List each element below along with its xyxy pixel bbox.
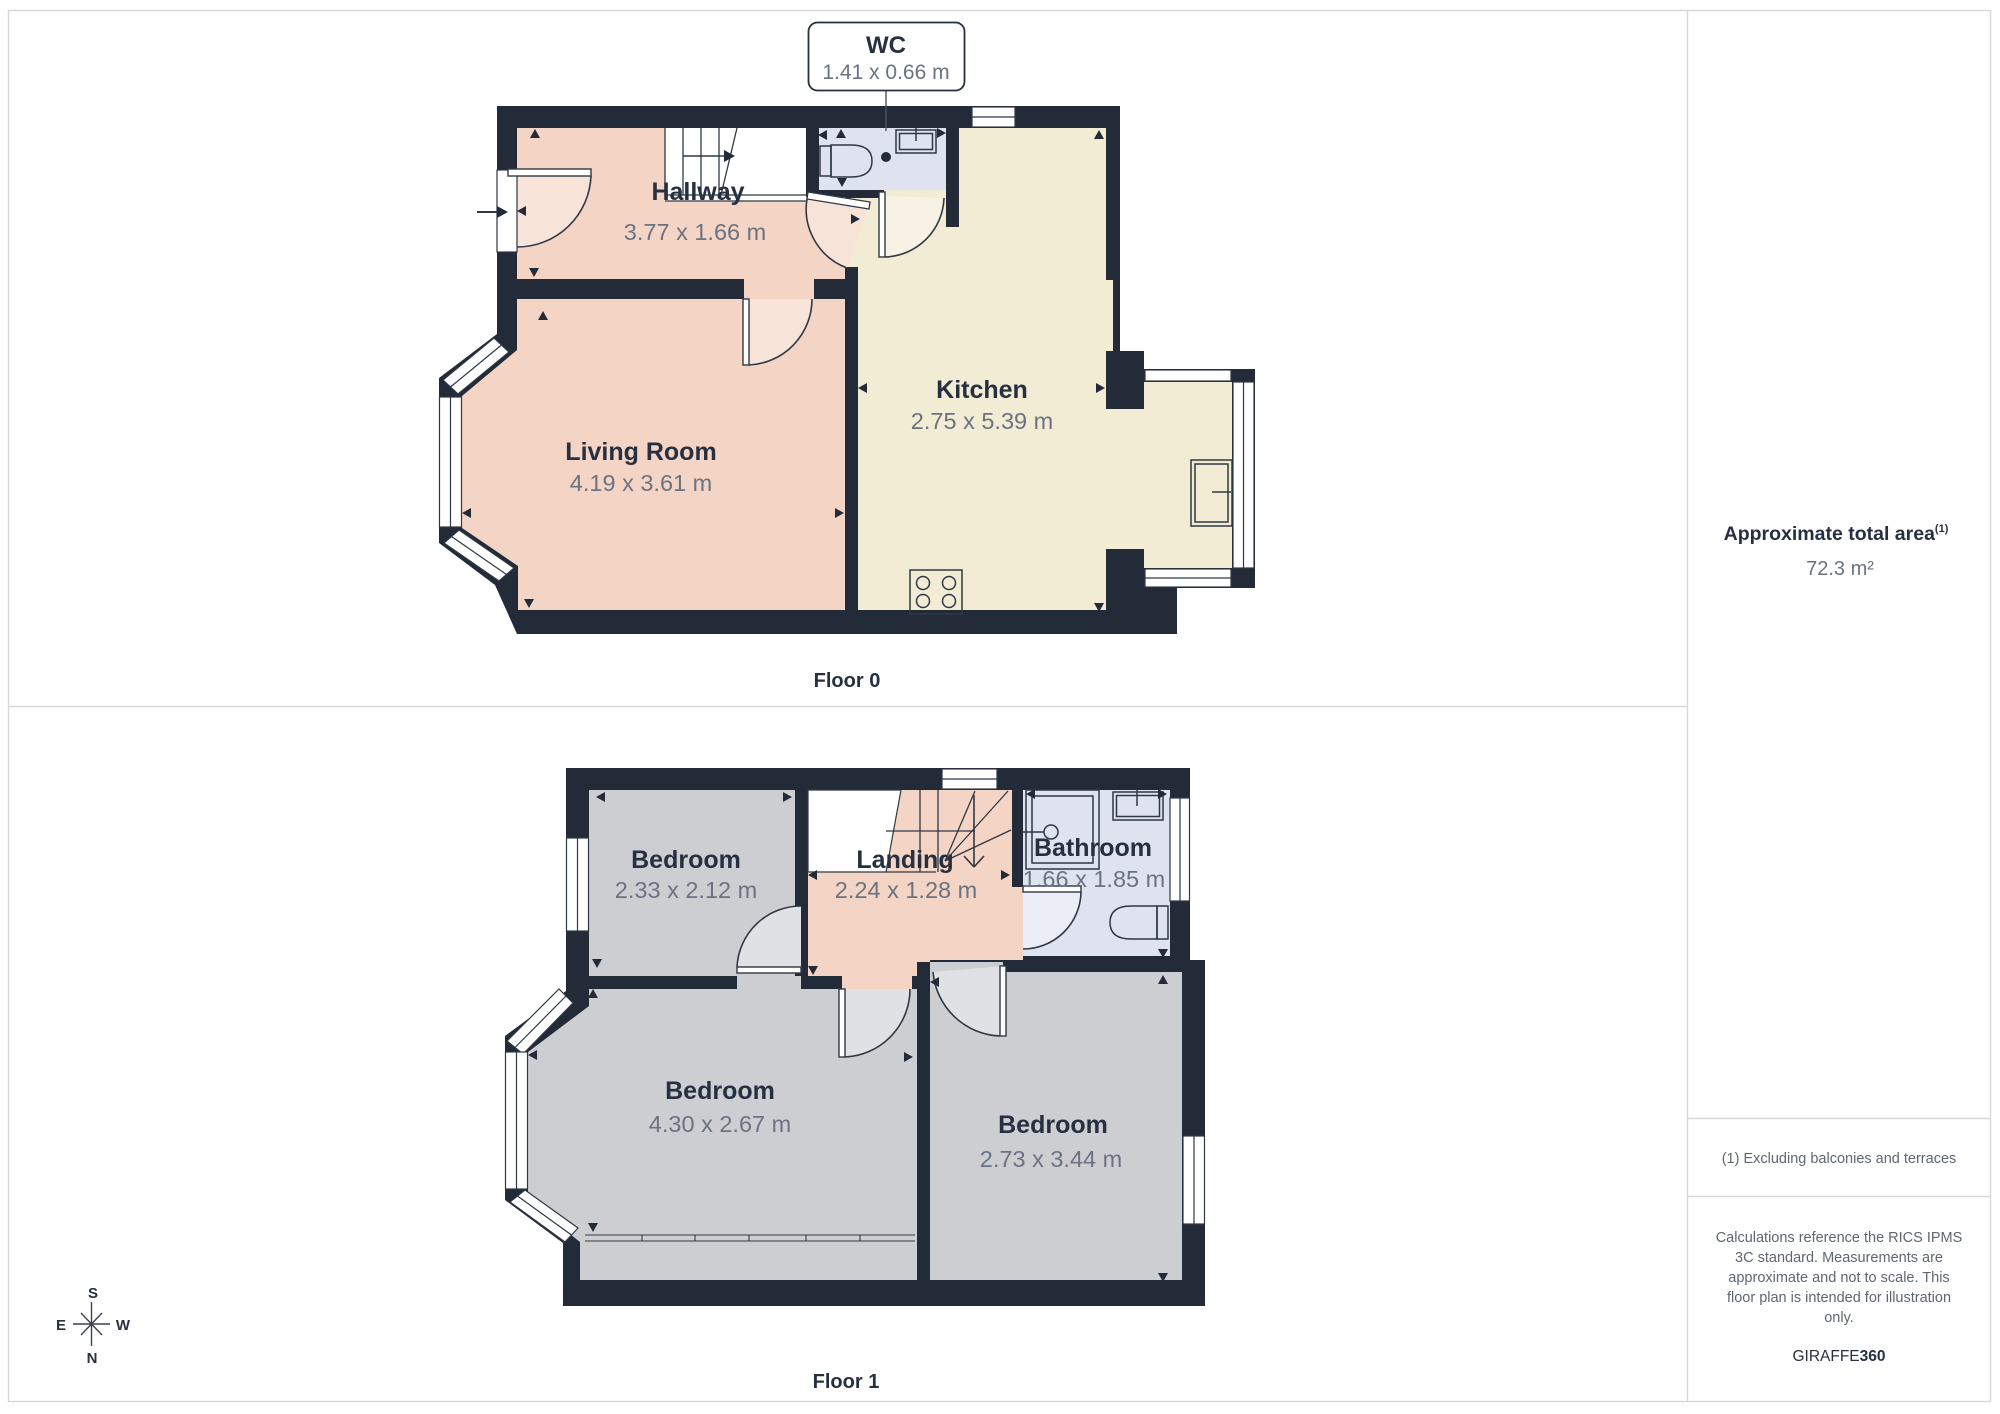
svg-text:approximate and not to scale.: approximate and not to scale. This xyxy=(1728,1270,1949,1286)
svg-text:S: S xyxy=(88,1285,98,1302)
svg-text:WC: WC xyxy=(866,32,906,59)
svg-text:4.19 x 3.61 m: 4.19 x 3.61 m xyxy=(570,470,712,496)
svg-text:1.66 x 1.85 m: 1.66 x 1.85 m xyxy=(1023,866,1165,892)
svg-text:(1) Excluding balconies and te: (1) Excluding balconies and terraces xyxy=(1722,1151,1957,1167)
svg-text:Kitchen: Kitchen xyxy=(936,376,1028,404)
svg-text:W: W xyxy=(116,1317,131,1334)
svg-text:Floor 0: Floor 0 xyxy=(814,670,881,692)
svg-text:Living Room: Living Room xyxy=(565,438,716,466)
svg-text:only.: only. xyxy=(1824,1310,1854,1326)
svg-text:GIRAFFE360: GIRAFFE360 xyxy=(1792,1348,1885,1365)
svg-text:2.24 x 1.28 m: 2.24 x 1.28 m xyxy=(835,877,977,903)
svg-text:1.41 x 0.66 m: 1.41 x 0.66 m xyxy=(822,61,949,84)
svg-text:E: E xyxy=(56,1317,66,1334)
svg-text:Bathroom: Bathroom xyxy=(1034,834,1152,862)
svg-text:2.73 x 3.44 m: 2.73 x 3.44 m xyxy=(980,1146,1122,1172)
svg-text:Bedroom: Bedroom xyxy=(998,1111,1108,1139)
svg-text:2.33 x 2.12 m: 2.33 x 2.12 m xyxy=(615,877,757,903)
svg-text:Approximate total area(1): Approximate total area(1) xyxy=(1724,523,1949,545)
svg-text:Calculations reference the RIC: Calculations reference the RICS IPMS xyxy=(1716,1230,1963,1246)
svg-text:floor plan is intended for ill: floor plan is intended for illustration xyxy=(1727,1290,1951,1306)
svg-text:4.30 x 2.67 m: 4.30 x 2.67 m xyxy=(649,1111,791,1137)
svg-text:Landing: Landing xyxy=(856,846,953,874)
svg-text:3C standard. Measurements are: 3C standard. Measurements are xyxy=(1735,1250,1943,1266)
svg-text:3.77 x 1.66 m: 3.77 x 1.66 m xyxy=(624,219,766,245)
svg-text:Hallway: Hallway xyxy=(651,178,744,206)
svg-text:72.3 m²: 72.3 m² xyxy=(1806,558,1874,580)
svg-text:Floor 1: Floor 1 xyxy=(813,1371,880,1393)
svg-text:N: N xyxy=(87,1350,98,1367)
svg-text:Bedroom: Bedroom xyxy=(631,846,741,874)
svg-text:2.75 x 5.39 m: 2.75 x 5.39 m xyxy=(911,408,1053,434)
svg-text:Bedroom: Bedroom xyxy=(665,1077,775,1105)
